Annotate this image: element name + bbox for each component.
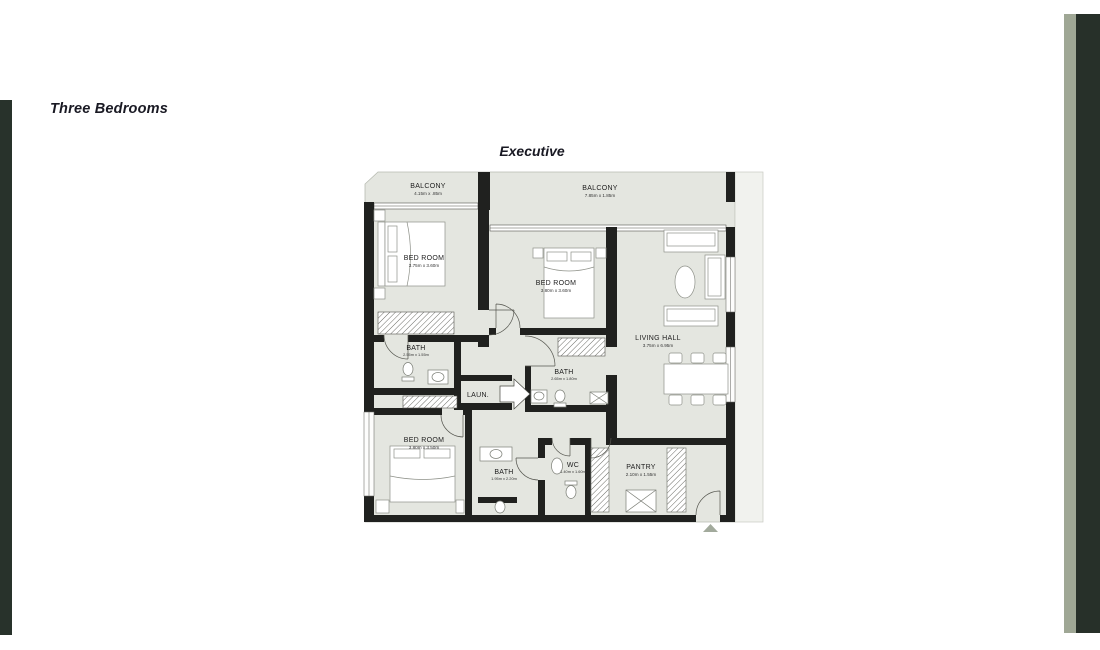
bath3-label: BATH: [494, 469, 513, 476]
page: Three Bedrooms Executive: [0, 0, 1100, 650]
bedroom2-dims: 3.80m x 3.60m: [541, 288, 572, 293]
wc-label: WC: [567, 462, 579, 469]
bedroom1-dims: 3.75m x 3.60m: [409, 263, 440, 268]
bedroom3-dims: 3.80m x 3.50m: [409, 445, 440, 450]
balcony1-label: BALCONY: [410, 183, 446, 190]
page-title: Three Bedrooms: [50, 101, 168, 117]
bath1-dims: 2.55m x 1.55m: [403, 352, 429, 357]
balcony2-label: BALCONY: [582, 185, 618, 192]
laundry-label: LAUN.: [467, 392, 489, 399]
plan-title: Executive: [432, 143, 632, 159]
bedroom2-label: BED ROOM: [536, 280, 577, 287]
living-dims: 3.75m x 6.95m: [643, 343, 674, 348]
living-label: LIVING HALL: [635, 335, 681, 342]
bath2-label: BATH: [554, 369, 573, 376]
left-accent-bar: [0, 100, 12, 635]
bedroom3-label: BED ROOM: [404, 437, 445, 444]
floor-plan-drawing: BALCONY 4.15m x .85m BALCONY 7.85m x 1.8…: [328, 170, 768, 534]
pantry-label: PANTRY: [626, 464, 656, 471]
balcony2-dims: 7.85m x 1.85m: [585, 193, 616, 198]
pantry-dims: 2.10m x 1.55m: [626, 472, 657, 477]
bedroom1-label: BED ROOM: [404, 255, 445, 262]
floor-plan: BALCONY 4.15m x .85m BALCONY 7.85m x 1.8…: [328, 170, 768, 534]
dining-set: [664, 353, 728, 405]
balcony1-dims: 4.15m x .85m: [414, 191, 442, 196]
bath2-dims: 2.65m x 1.80m: [551, 376, 577, 381]
right-accent-bar-light: [1064, 14, 1076, 633]
bath1-label: BATH: [406, 345, 425, 352]
wc-dims: 1.40m x 1.60m: [560, 469, 586, 474]
bath3-dims: 1.95m x 2.20m: [491, 476, 517, 481]
entry-arrow: [703, 524, 718, 532]
right-accent-bar-dark: [1076, 14, 1100, 633]
